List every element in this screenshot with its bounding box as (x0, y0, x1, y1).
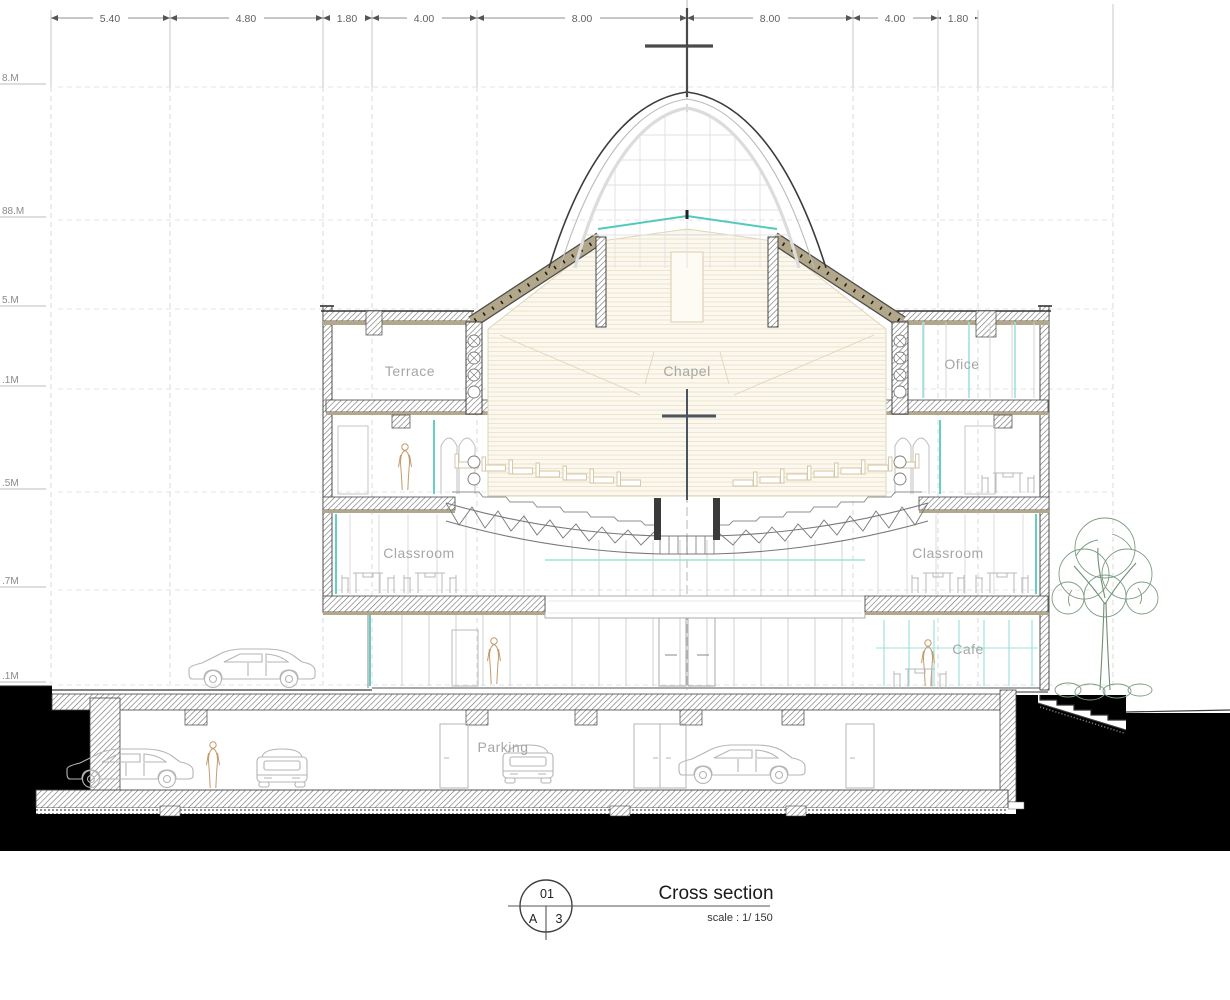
elevation-label-2: 5.M (2, 295, 19, 306)
room-label-parking: Parking (478, 739, 529, 755)
elevation-label-6: .1M (2, 671, 19, 682)
room-label-office: Ofice (944, 356, 979, 372)
ring-beam (545, 596, 865, 618)
right-roof-slab (898, 311, 1049, 321)
title-block: 01 A 3 Cross section scale : 1/ 150 (508, 880, 774, 940)
car-side-icon (679, 745, 805, 784)
classroom-ceiling-slab (919, 497, 1049, 510)
basement-parking: Parking (36, 690, 1024, 816)
room-label-chapel: Chapel (663, 363, 710, 379)
dim-label-7: 1.80 (948, 13, 969, 25)
sheet-number: 01 (540, 887, 554, 901)
basement-right-wall (1000, 690, 1016, 802)
person-figure (207, 742, 220, 788)
left-outer-wall (323, 306, 332, 612)
elevation-label-3: .1M (2, 375, 19, 386)
table-chairs-icon (976, 573, 1028, 593)
cafe: Cafe (876, 620, 1038, 689)
foundation-blinding (36, 808, 1008, 814)
chapel-stepped-floor (452, 492, 658, 525)
chapel: Chapel (446, 229, 928, 554)
table-chairs-icon (982, 473, 1034, 493)
dim-label-4: 8.00 (572, 13, 593, 25)
drawing-title: Cross section (658, 883, 773, 904)
dim-label-6: 4.00 (885, 13, 906, 25)
classroom-floor-slab (323, 596, 545, 612)
balcony-post (713, 498, 720, 540)
right-aisle (895, 420, 995, 494)
drawing-scale: scale : 1/ 150 (707, 912, 772, 924)
elevation-labels: 8.M 88.M 5.M .1M .5M .7M .1M (0, 73, 46, 682)
left-classroom: Classroom (323, 497, 545, 615)
parking-ceiling-slab (52, 694, 1004, 710)
person-figure (922, 640, 935, 686)
person-figure (488, 638, 501, 684)
room-label-classroom-right: Classroom (912, 545, 983, 561)
elevation-label-5: .7M (2, 576, 19, 587)
dim-label-1: 4.80 (236, 13, 257, 25)
car-side-icon (189, 649, 315, 688)
room-label-cafe: Cafe (952, 641, 984, 657)
dim-label-2: 1.80 (337, 13, 358, 25)
foundation-slab (36, 790, 1008, 808)
dim-label-3: 4.00 (414, 13, 435, 25)
elevation-label-1: 88.M (2, 206, 24, 217)
dimension-labels: 5.40 4.80 1.80 4.00 8.00 8.00 4.00 1.80 (93, 12, 975, 25)
classroom-floor-slab (865, 596, 1048, 612)
dimension-strip: 5.40 4.80 1.80 4.00 8.00 8.00 4.00 1.80 (51, 12, 978, 25)
person-figure (399, 444, 412, 490)
car-front-icon (257, 749, 307, 787)
classroom-ceiling-slab (323, 497, 455, 510)
parking-beams (185, 710, 804, 725)
sheet-grid-row: A (529, 912, 538, 926)
right-classroom: Classroom (865, 497, 1049, 615)
dim-label-5: 8.00 (760, 13, 781, 25)
elevation-label-4: .5M (2, 478, 19, 489)
sheet-grid-col: 3 (556, 912, 563, 926)
left-roof-slab (323, 311, 472, 321)
room-label-terrace: Terrace (385, 363, 435, 379)
left-aisle (338, 420, 475, 494)
architectural-section-sheet: 5.40 4.80 1.80 4.00 8.00 8.00 4.00 1.80 … (0, 0, 1230, 1000)
dim-label-0: 5.40 (100, 13, 121, 25)
room-label-classroom-left: Classroom (383, 545, 454, 561)
ground-mass (0, 686, 1230, 851)
elevation-label-0: 8.M (2, 73, 19, 84)
balcony-post (654, 498, 661, 540)
cross-section-drawing: 5.40 4.80 1.80 4.00 8.00 8.00 4.00 1.80 … (0, 0, 1230, 1000)
rooftop-cross-icon (645, 8, 713, 97)
tree (1052, 518, 1158, 700)
